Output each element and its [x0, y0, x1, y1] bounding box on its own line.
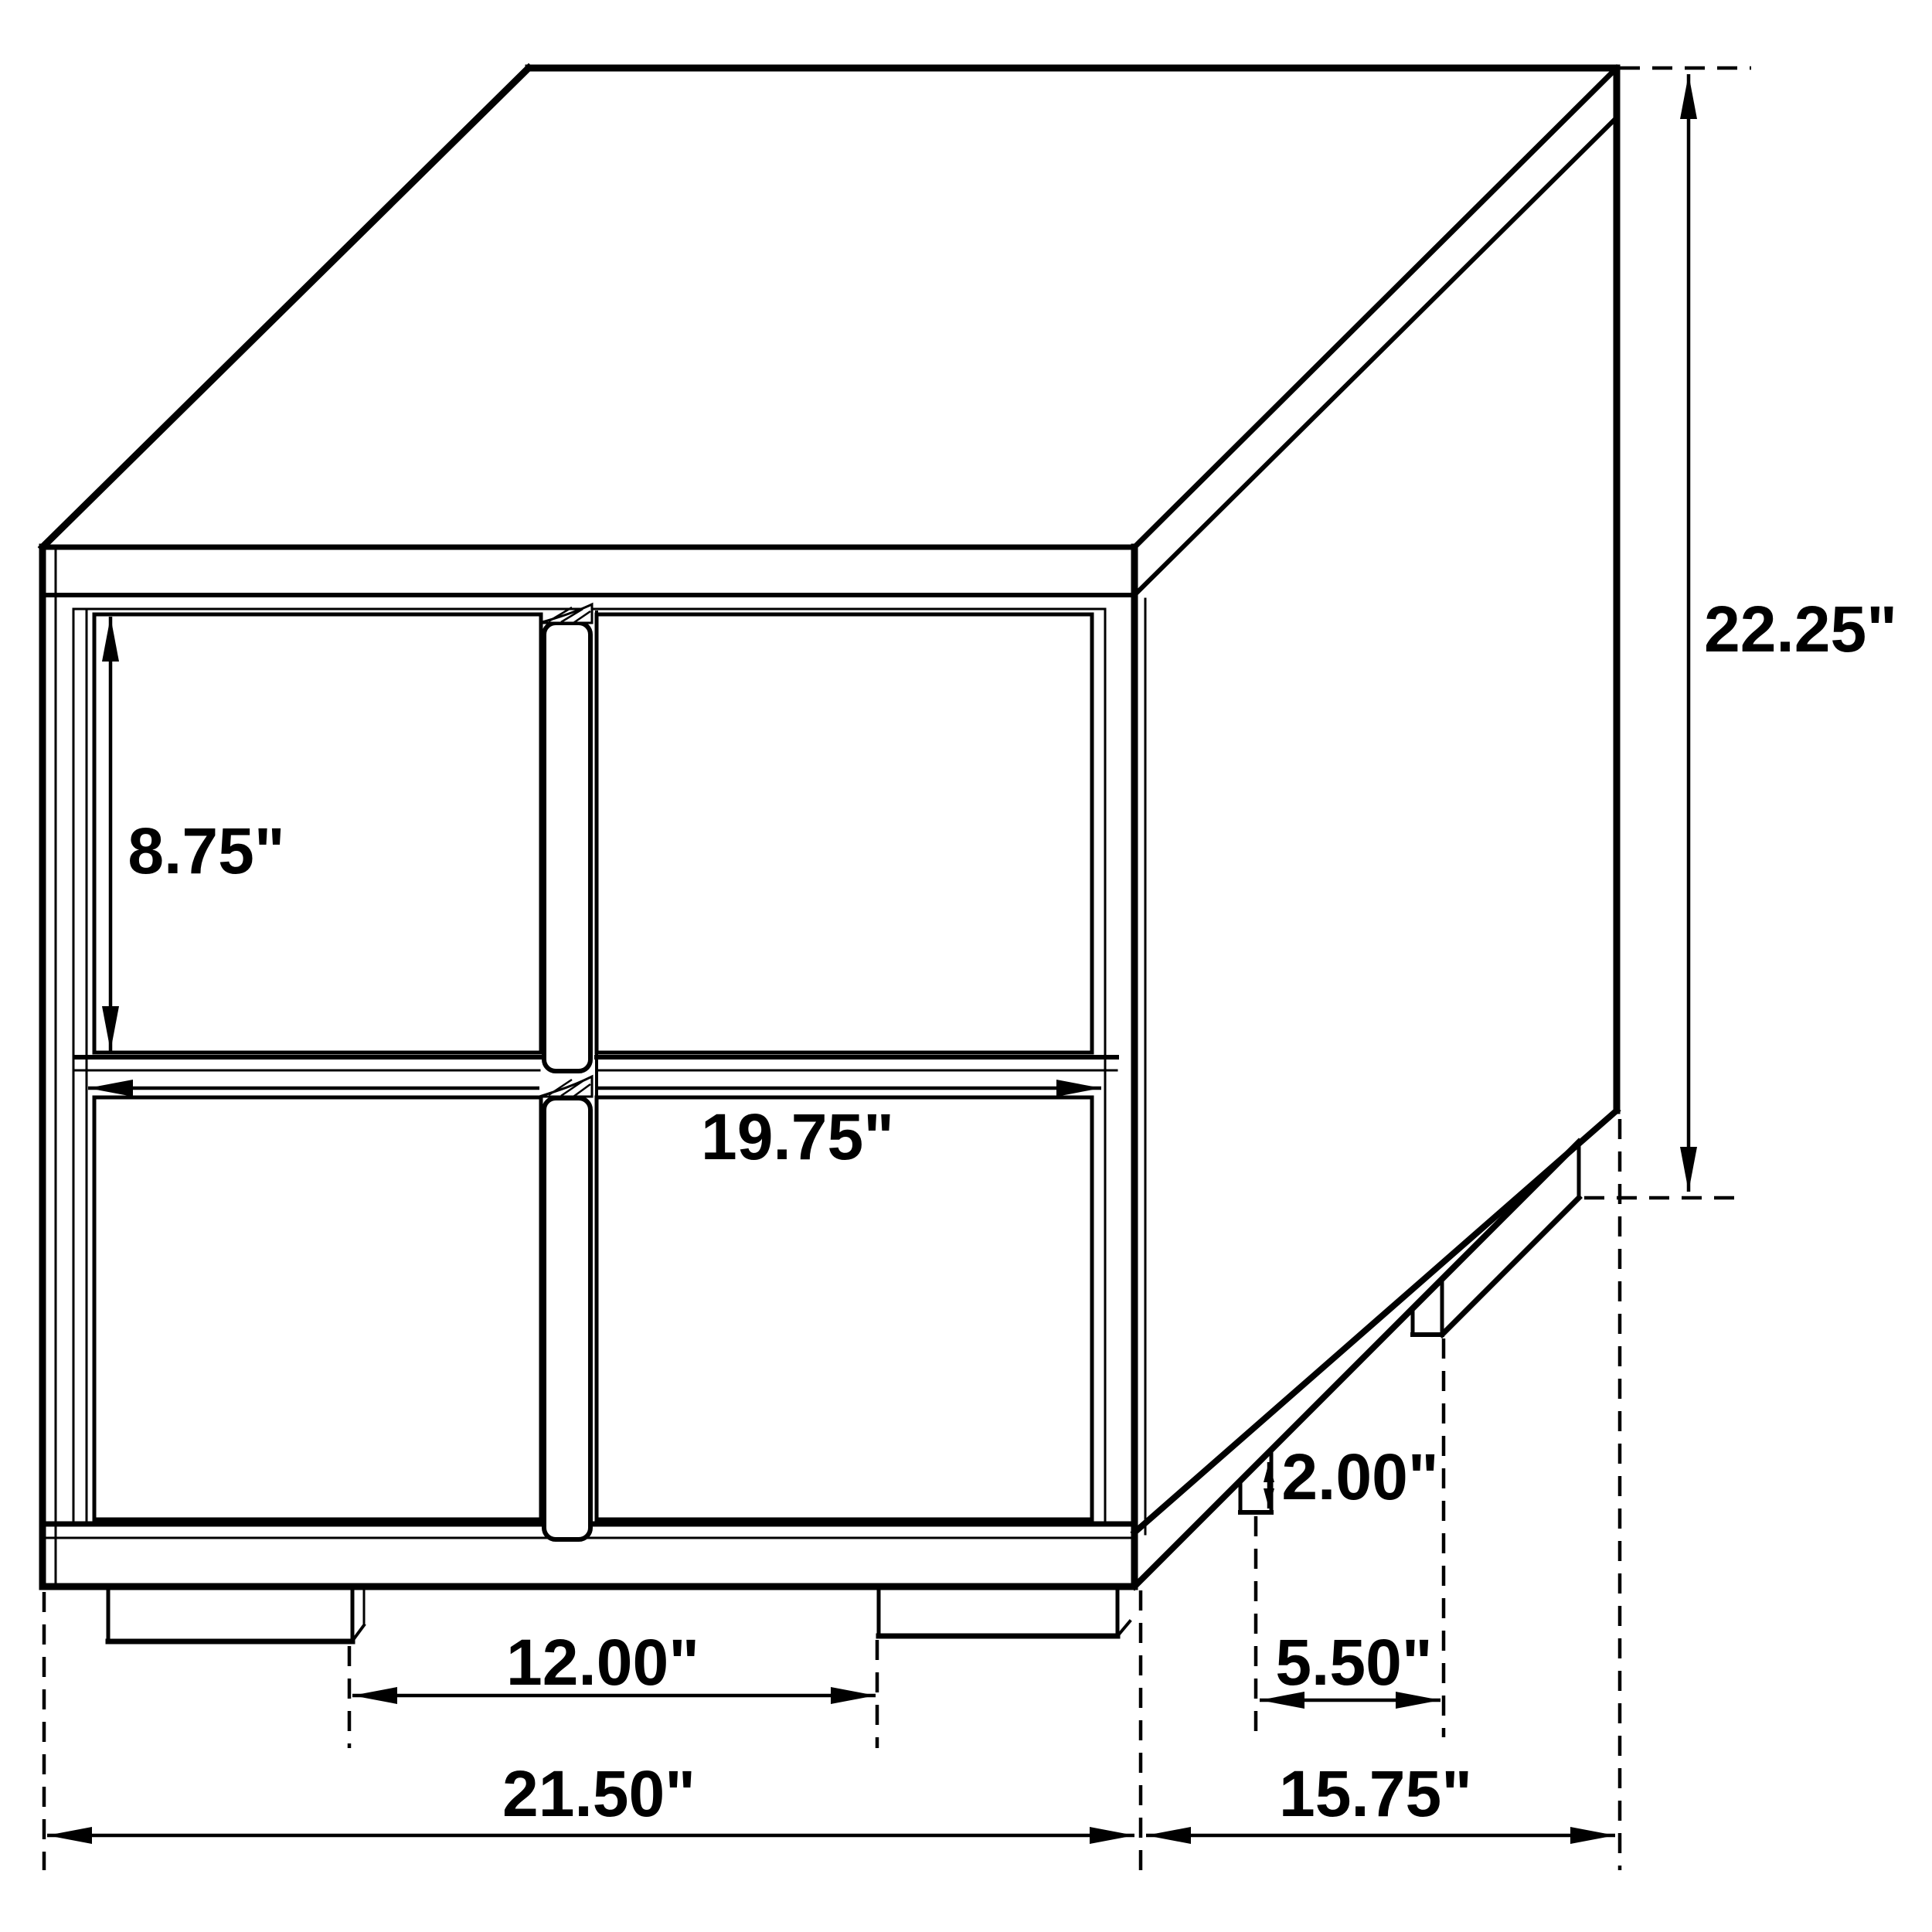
drawer-panel-bottom-left — [94, 1097, 541, 1519]
side-base — [1134, 1142, 1579, 1587]
dimension-label-overall-depth: 15.75" — [1279, 1757, 1472, 1830]
dimension-label-overall-width: 21.50" — [502, 1757, 696, 1830]
front-foot-left — [108, 1587, 364, 1641]
front-foot-right — [879, 1587, 1130, 1636]
drawer-panels — [94, 614, 1092, 1519]
handle-mount-hatch-middle — [539, 1077, 592, 1097]
side-panel — [1134, 68, 1617, 1534]
dimension-leg-height: 2.00" — [1269, 1440, 1439, 1513]
side-foot-front — [1240, 1451, 1271, 1512]
dimension-label-drawer-front-height: 8.75" — [128, 815, 284, 887]
diagram-page: 8.75" 19.75" 22.25" 2.00" 12.00" 5.50" 2… — [0, 0, 1932, 1932]
dimension-side-leg-spacing: 5.50" — [1260, 1626, 1440, 1700]
dimension-label-drawer-width: 19.75" — [701, 1100, 894, 1173]
dimension-label-front-leg-spacing: 12.00" — [506, 1626, 699, 1699]
dimension-front-leg-spacing: 12.00" — [352, 1626, 876, 1699]
handle-mount-hatch-top — [539, 604, 592, 623]
top-drawer-handle — [544, 623, 590, 1071]
dimension-overall-height: 22.25" — [1689, 74, 1897, 1192]
extension-lines — [44, 68, 1751, 1870]
bottom-drawer-handle — [544, 1098, 590, 1539]
dimension-label-leg-height: 2.00" — [1281, 1440, 1438, 1513]
drawer-handles — [539, 604, 592, 1539]
dimension-overall-width: 21.50" — [47, 1757, 1134, 1835]
dimension-drawer-front-height: 8.75" — [111, 617, 285, 1051]
dimension-label-overall-height: 22.25" — [1704, 593, 1897, 665]
dimension-overall-depth: 15.75" — [1146, 1757, 1615, 1835]
dimension-label-side-leg-spacing: 5.50" — [1275, 1626, 1432, 1699]
top-surface — [43, 68, 1617, 595]
nightstand-dimension-drawing: 8.75" 19.75" 22.25" 2.00" 12.00" 5.50" 2… — [0, 0, 1932, 1932]
drawer-panel-top-right — [597, 614, 1092, 1053]
